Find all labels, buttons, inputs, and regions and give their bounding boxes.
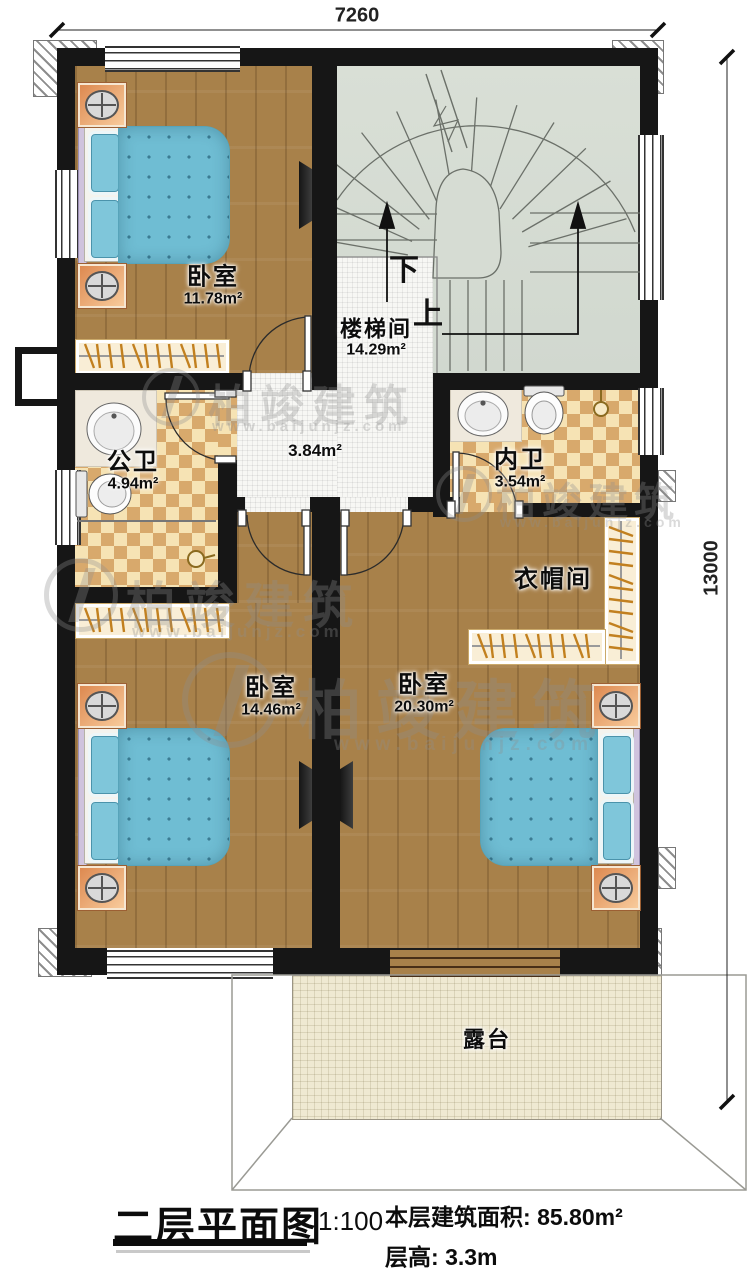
watermark-url: www.baijunjz.com — [500, 514, 685, 530]
lamp-icon — [85, 271, 119, 301]
tv-icon — [299, 161, 312, 229]
wall — [240, 48, 658, 66]
room-label-stairwell: 楼梯间 14.29m² — [340, 317, 412, 358]
window-bedroom-top — [105, 46, 240, 72]
title-underline-black — [113, 1239, 307, 1246]
nightstand — [78, 866, 126, 910]
wall — [218, 497, 245, 512]
watermark-logo-icon — [436, 466, 492, 522]
bed-duvet — [118, 126, 230, 264]
stair-up-label: 上 — [413, 289, 443, 333]
room-label-cloakroom: 衣帽间 — [514, 567, 592, 593]
bed-pillow — [88, 197, 122, 261]
room-label-bedroom-top: 卧室 11.78m² — [184, 264, 243, 307]
lamp-icon — [85, 873, 119, 903]
watermark-url: www.baijunjz.com — [132, 622, 343, 642]
nightstand — [78, 684, 126, 728]
pier-right-lower — [658, 847, 676, 889]
wardrobe-cloakroom-side — [604, 517, 640, 665]
watermark-logo-icon — [142, 368, 200, 426]
room-label-public-bath: 公卫 4.94m² — [107, 449, 159, 492]
lamp-icon — [85, 691, 119, 721]
wall — [310, 497, 340, 512]
nightstand — [592, 866, 640, 910]
window-public-bath — [55, 470, 81, 545]
wall — [57, 948, 107, 975]
window-stairwell — [638, 135, 664, 300]
room-label-bedroom-left: 卧室 14.46m² — [241, 675, 301, 718]
window-bedroom-left — [107, 950, 273, 979]
wall — [640, 300, 658, 388]
lamp-icon — [85, 90, 119, 120]
floor-plan-canvas: 柏竣建筑 www.baijunjz.com 柏竣建筑 www.baijunjz.… — [0, 0, 750, 1270]
plan-scale: 1:100 — [318, 1206, 383, 1237]
dimension-right: 13000 — [701, 540, 724, 596]
nightstand — [78, 83, 126, 127]
dimension-top: 7260 — [335, 5, 380, 28]
room-label-ensuite-bath: 内卫 3.54m² — [494, 447, 546, 490]
lamp-icon — [599, 873, 633, 903]
bed-pillow — [88, 799, 122, 863]
bed-pillow — [88, 131, 122, 195]
bed-pillow — [88, 733, 122, 797]
wall — [273, 948, 390, 975]
ensuite-bath-counter — [450, 388, 522, 442]
hall-door-gap-tile — [245, 497, 310, 512]
wall — [640, 48, 658, 135]
bed-duvet — [118, 728, 230, 866]
wall — [560, 948, 658, 975]
wall — [57, 48, 75, 170]
tv-icon — [299, 761, 312, 829]
wall — [640, 455, 658, 975]
floor-height-text: 层高: 3.3m — [385, 1238, 498, 1270]
sliding-door-terrace — [390, 948, 560, 977]
watermark-logo-icon — [44, 558, 118, 632]
hall-door-gap-tile — [340, 497, 408, 512]
watermark-url: www.baijunjz.com — [212, 418, 405, 435]
watermark-url: www.baijunjz.com — [334, 734, 594, 756]
nightstand — [78, 264, 126, 308]
wardrobe-bedroom-top — [75, 339, 230, 375]
wall-bedroom-stair-divider — [312, 48, 337, 390]
room-label-bedroom-right: 卧室 20.30m² — [394, 672, 454, 715]
room-label-terrace: 露台 — [463, 1028, 511, 1052]
title-underline-gray — [116, 1250, 310, 1253]
stair-down-label: 下 — [389, 245, 419, 289]
bed-pillow — [600, 799, 634, 863]
wall — [57, 258, 75, 470]
floor-area-text: 本层建筑面积: 85.80m² — [385, 1198, 623, 1232]
wall — [433, 373, 640, 390]
tv-icon — [340, 761, 353, 829]
window-ensuite-bath — [638, 388, 664, 455]
room-label-hallway: 3.84m² — [288, 442, 342, 460]
